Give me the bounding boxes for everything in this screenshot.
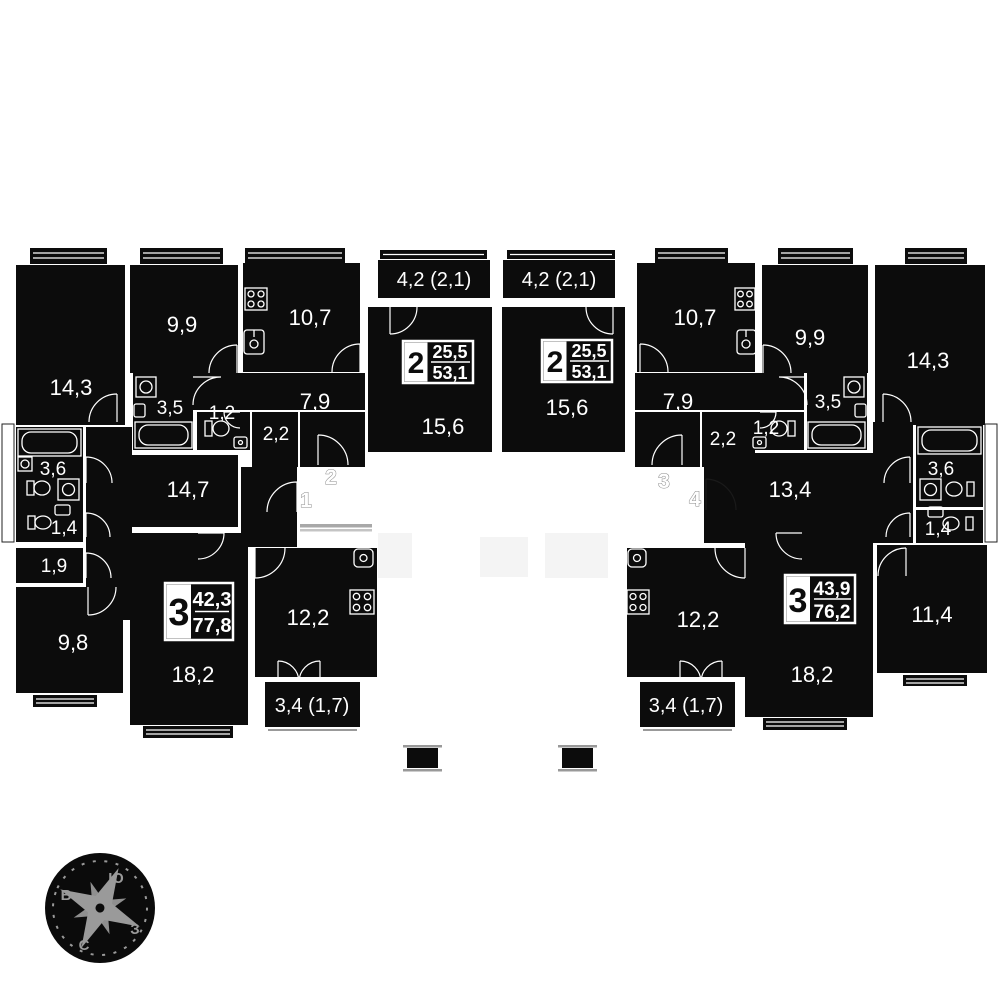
badge-room-count: 3 [168,592,189,634]
badge-room-count: 2 [408,347,425,380]
badge-living-area: 25,5 [571,341,606,361]
room-label: 9,9 [795,325,826,350]
corridor-7-9-right-b [635,412,700,467]
window [507,250,615,259]
room-label: 2,2 [263,424,289,445]
room-label: 10,7 [674,305,717,330]
room-label: 4,2 (2,1) [522,269,596,291]
window [778,248,853,264]
entrance-number-2: 2 [325,466,337,489]
entrance-number-4: 4 [689,488,701,511]
window [245,248,345,264]
room-label: 10,7 [289,305,332,330]
room-label: 1,4 [51,518,78,539]
flat-numbers: 1 2 3 4 [300,466,701,512]
apartment-badge-2-right[interactable]: 2 25,5 53,1 [542,340,612,382]
window [30,248,107,264]
stair-core-faint [378,533,608,578]
room-label: 15,6 [546,395,589,420]
entry-vestibule-left [241,467,297,547]
window [905,248,967,264]
badge-living-area: 43,9 [814,579,851,600]
window [33,695,97,707]
badge-room-count: 2 [547,346,564,379]
room-label: 1,4 [925,519,952,540]
entrance-number-1: 1 [300,489,312,512]
room-label: 3,4 (1,7) [275,695,349,717]
entrance-number-3: 3 [658,470,670,493]
compass-rose: Ю В З С [38,846,163,971]
corridor-7-9-left-b [300,412,365,467]
badge-living-area: 42,3 [193,589,232,611]
window [763,718,847,730]
room-label: 3,5 [157,398,183,419]
badge-room-count: 3 [789,582,808,620]
staircase-left [300,524,372,532]
badge-total-area: 53,1 [571,362,606,382]
room-label: 12,2 [677,607,720,632]
apartment-badge-2-left[interactable]: 2 25,5 53,1 [403,341,473,383]
room-label: 18,2 [172,662,215,687]
room-9-9-right [762,265,868,373]
room-label: 12,2 [287,605,330,630]
room-label: 14,3 [907,348,950,373]
room-label: 14,3 [50,375,93,400]
window [143,726,233,738]
room-label: 7,9 [663,389,694,414]
entrance-porch [558,745,597,772]
exterior-wall-right [985,424,997,542]
room-label: 9,9 [167,312,198,337]
badge-total-area: 76,2 [814,602,851,623]
room-label: 1,9 [41,556,67,577]
floor-plan-svg: 14,3 9,9 10,7 3,5 1,2 2,2 7,9 14,7 3,6 1… [0,0,1000,1000]
room-label: 18,2 [791,662,834,687]
entrance-porch [403,745,442,772]
floor-plan-page: 14,3 9,9 10,7 3,5 1,2 2,2 7,9 14,7 3,6 1… [0,0,1000,1000]
room-label: 3,5 [815,392,841,413]
compass-label-west: З [130,921,139,938]
badge-total-area: 53,1 [432,363,467,383]
compass-label-north: С [79,937,90,954]
room-label: 1,2 [753,418,779,439]
room-label: 7,9 [300,389,331,414]
room-label: 2,2 [710,429,736,450]
room-label: 15,6 [422,414,465,439]
room-label: 11,4 [911,602,952,627]
room-label: 3,4 (1,7) [649,695,723,717]
room-label: 1,2 [209,403,235,424]
apartment-badge-3-left[interactable]: 3 42,3 77,8 [165,583,233,640]
windows-top [30,248,967,264]
window [140,248,223,264]
room-label: 14,7 [167,477,210,502]
room-label: 3,6 [928,459,954,480]
apartment-badge-3-right[interactable]: 3 43,9 76,2 [785,575,855,623]
compass-label-south: Ю [108,870,123,887]
exterior-wall-left [2,424,14,542]
threshold [648,464,684,467]
room-label: 9,8 [58,630,89,655]
badge-total-area: 77,8 [193,615,232,637]
room-label: 13,4 [769,477,812,502]
window [655,248,728,264]
room-label: 4,2 (2,1) [397,269,471,291]
window [380,250,487,259]
room-14-3-right [875,265,985,425]
compass-label-east: В [61,887,72,904]
corridor-7-9-right [635,373,804,410]
hall-corridor-strip-right [873,422,913,543]
room-14-3-left [16,265,125,425]
badge-living-area: 25,5 [432,342,467,362]
window [903,675,967,686]
room-label: 3,6 [40,459,66,480]
